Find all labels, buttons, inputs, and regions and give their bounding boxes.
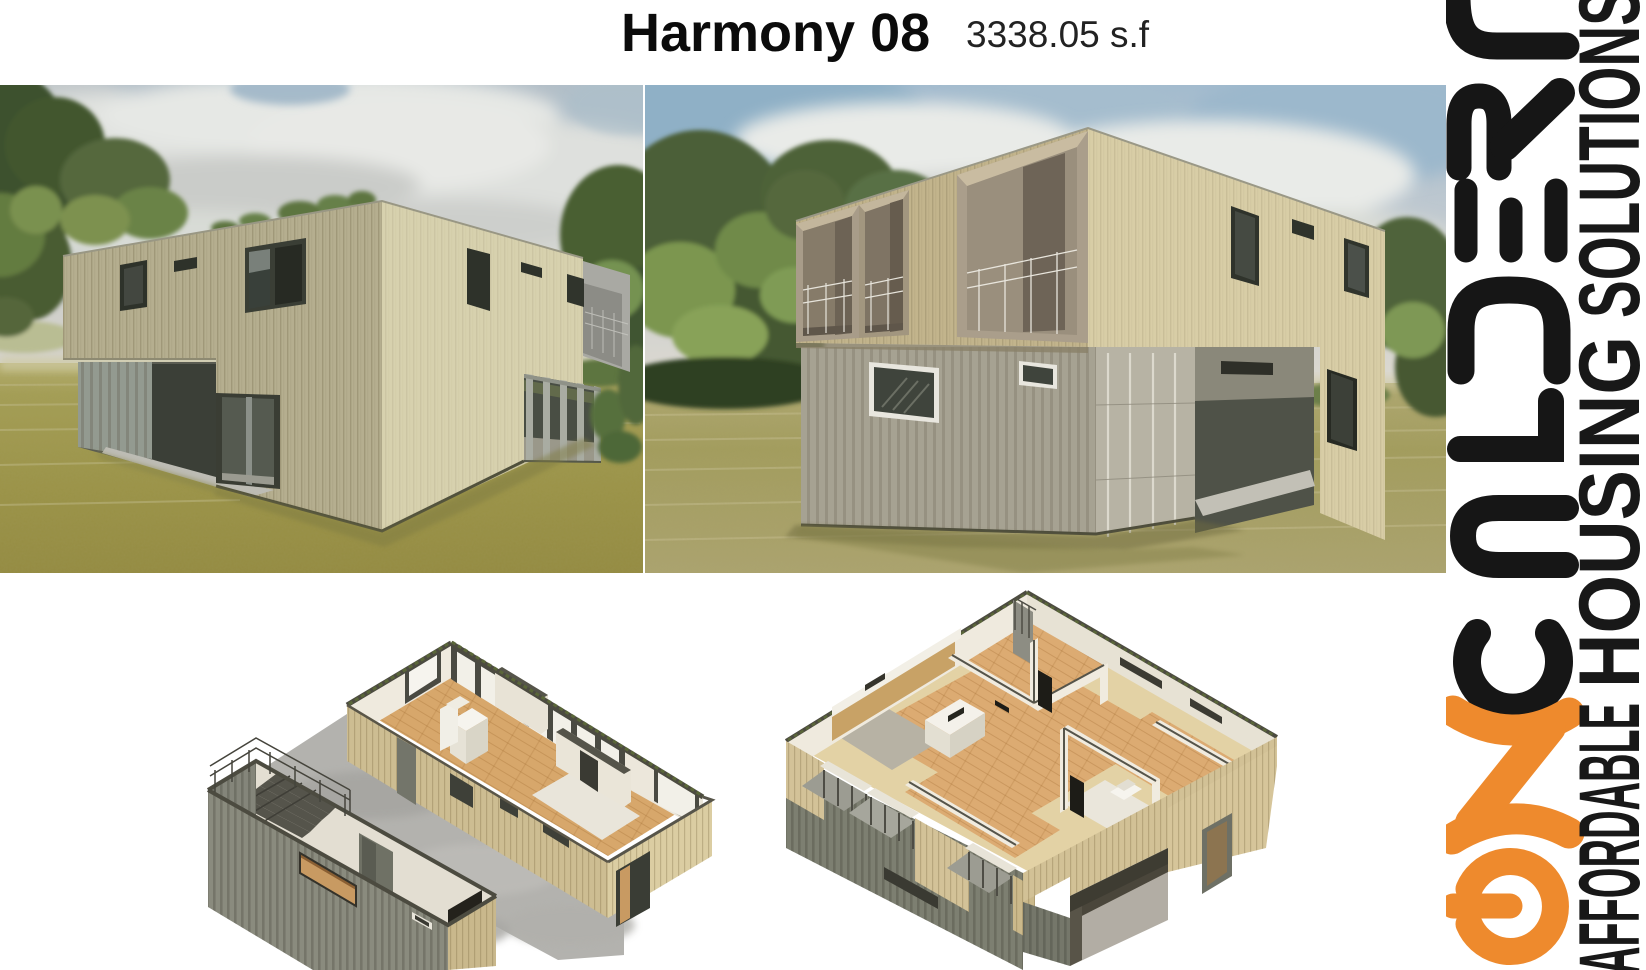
svg-text:SOLUTIONS: SOLUTIONS [1562, 0, 1646, 318]
svg-text:HOUSING: HOUSING [1562, 336, 1646, 688]
svg-text:AFFORDABLE: AFFORDABLE [1562, 703, 1646, 970]
